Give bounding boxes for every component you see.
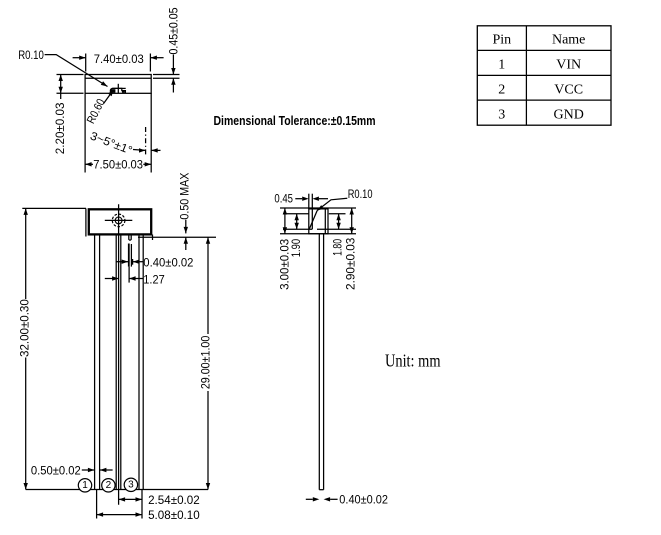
svg-text:R0.10: R0.10 <box>348 189 373 201</box>
svg-text:2: 2 <box>106 480 112 491</box>
svg-text:2: 2 <box>498 82 505 97</box>
svg-text:3: 3 <box>498 107 505 122</box>
svg-text:1.90: 1.90 <box>291 239 303 257</box>
svg-text:2.20±0.03: 2.20±0.03 <box>55 103 67 155</box>
svg-text:2.54±0.02: 2.54±0.02 <box>148 495 200 507</box>
svg-text:0.40±0.02: 0.40±0.02 <box>339 494 388 506</box>
svg-text:0.45±0.05: 0.45±0.05 <box>168 8 180 55</box>
svg-text:1.80: 1.80 <box>332 239 344 256</box>
svg-text:1: 1 <box>498 58 505 73</box>
svg-text:R0.10: R0.10 <box>18 50 44 62</box>
svg-text:3.00±0.03: 3.00±0.03 <box>279 239 291 290</box>
svg-text:0.50 MAX: 0.50 MAX <box>180 172 192 219</box>
svg-text:3: 3 <box>128 480 134 491</box>
svg-text:VIN: VIN <box>556 58 581 73</box>
svg-text:1: 1 <box>82 480 88 491</box>
svg-text:29.00±1.00: 29.00±1.00 <box>201 336 213 390</box>
svg-text:Name: Name <box>552 33 585 48</box>
svg-text:VCC: VCC <box>554 82 583 97</box>
svg-text:5.08±0.10: 5.08±0.10 <box>148 510 200 522</box>
svg-text:Pin: Pin <box>492 33 511 48</box>
svg-text:1.27: 1.27 <box>143 275 164 287</box>
svg-text:0.45: 0.45 <box>274 193 293 205</box>
svg-text:0.40±0.02: 0.40±0.02 <box>143 258 193 270</box>
svg-text:Dimensional Tolerance:±0.15mm: Dimensional Tolerance:±0.15mm <box>214 114 376 128</box>
svg-text:Unit: mm: Unit: mm <box>385 350 441 370</box>
svg-text:7.40±0.03: 7.40±0.03 <box>94 54 144 66</box>
svg-text:GND: GND <box>554 107 584 122</box>
svg-text:7.50±0.03: 7.50±0.03 <box>93 160 143 172</box>
svg-text:0.50±0.02: 0.50±0.02 <box>31 465 81 477</box>
svg-text:2.90±0.03: 2.90±0.03 <box>346 238 358 290</box>
svg-text:32.00±0.30: 32.00±0.30 <box>19 299 31 357</box>
